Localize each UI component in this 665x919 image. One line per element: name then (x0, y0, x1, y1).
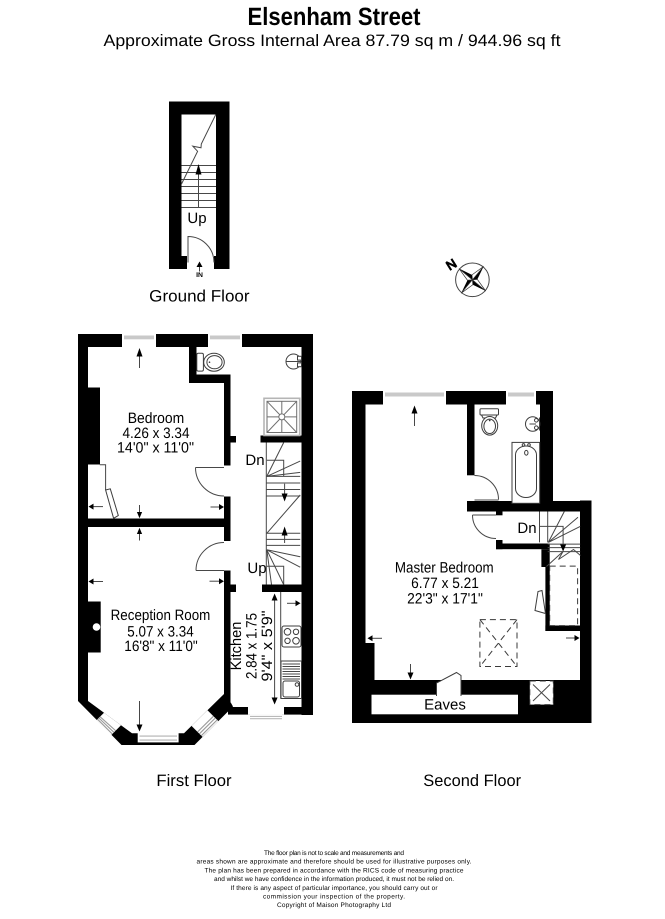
svg-text:Up: Up (187, 210, 206, 227)
svg-text:9'4" x 5'9": 9'4" x 5'9" (259, 611, 276, 682)
svg-text:Approximate Gross Internal Are: Approximate Gross Internal Area 87.79 sq… (104, 32, 561, 50)
svg-text:The floor plan is not to scale: The floor plan is not to scale and measu… (264, 850, 404, 857)
svg-text:Eaves: Eaves (424, 697, 466, 714)
svg-text:First Floor: First Floor (156, 772, 232, 790)
svg-text:14'0" x 11'0": 14'0" x 11'0" (117, 440, 194, 457)
svg-text:Ground Floor: Ground Floor (149, 288, 250, 306)
svg-text:Elsenham Street: Elsenham Street (248, 3, 422, 31)
svg-text:Copyright of Maison Photograph: Copyright of Maison Photography Ltd (277, 902, 391, 909)
svg-text:If there is any aspect of part: If there is any aspect of particular imp… (231, 885, 439, 892)
svg-text:2.84 x 1.75: 2.84 x 1.75 (244, 613, 261, 679)
svg-text:The plan has been prepared in: The plan has been prepared in accordance… (205, 867, 464, 874)
svg-text:16'8" x 11'0": 16'8" x 11'0" (124, 638, 197, 655)
svg-text:Dn: Dn (245, 452, 264, 469)
svg-text:areas shown are approximate an: areas shown are approximate and therefor… (197, 859, 472, 866)
svg-text:Kitchen: Kitchen (228, 622, 245, 671)
svg-text:Second Floor: Second Floor (423, 772, 521, 790)
svg-text:IN: IN (196, 272, 203, 279)
svg-text:and whilst we have confidence: and whilst we have confidence in the inf… (214, 876, 454, 883)
svg-text:22'3" x 17'1": 22'3" x 17'1" (407, 590, 483, 607)
svg-text:commission your inspection of: commission your inspection of the proper… (263, 894, 405, 901)
svg-text:Dn: Dn (517, 520, 536, 537)
svg-text:Reception Room: Reception Room (111, 607, 211, 624)
svg-text:Up: Up (247, 560, 266, 577)
svg-text:Master Bedroom: Master Bedroom (395, 560, 494, 577)
